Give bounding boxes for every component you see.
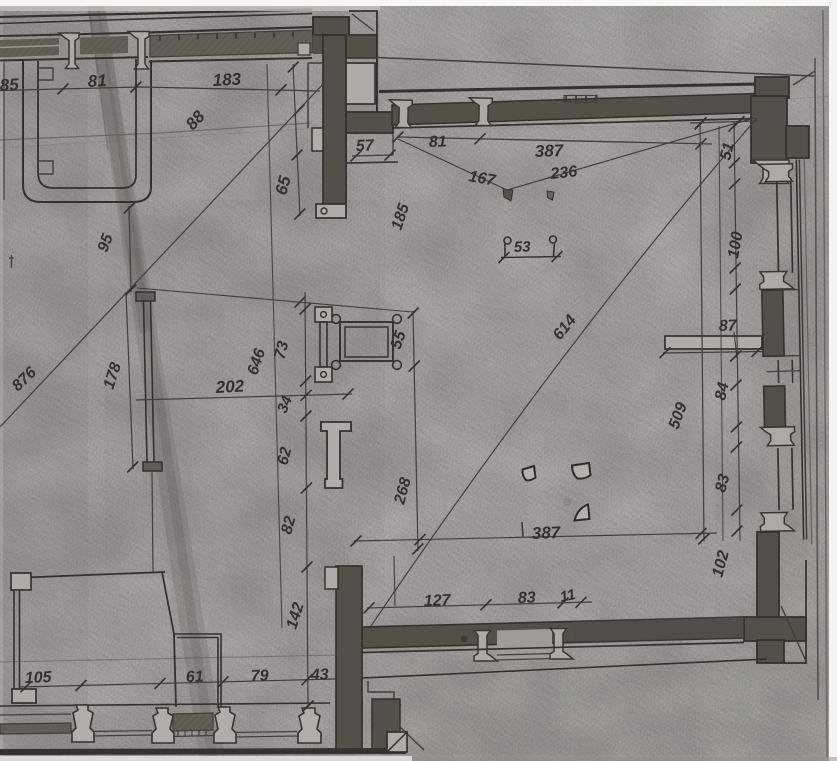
svg-text:387: 387 [534, 141, 565, 161]
svg-text:202: 202 [214, 377, 245, 398]
svg-text:87: 87 [719, 317, 738, 335]
svg-text:127: 127 [424, 592, 452, 610]
svg-text:183: 183 [212, 70, 242, 90]
svg-text:61: 61 [186, 668, 204, 686]
svg-text:236: 236 [549, 163, 578, 183]
svg-text:105: 105 [25, 669, 53, 687]
svg-text:81: 81 [429, 133, 447, 151]
svg-text:83: 83 [518, 589, 536, 607]
svg-text:53: 53 [514, 238, 532, 256]
svg-text:79: 79 [251, 667, 269, 685]
svg-text:84: 84 [712, 381, 732, 402]
svg-text:81: 81 [87, 71, 107, 91]
svg-text:387: 387 [531, 523, 562, 543]
svg-text:57: 57 [356, 137, 375, 155]
svg-text:43: 43 [310, 666, 329, 684]
svg-text:85: 85 [0, 75, 20, 95]
